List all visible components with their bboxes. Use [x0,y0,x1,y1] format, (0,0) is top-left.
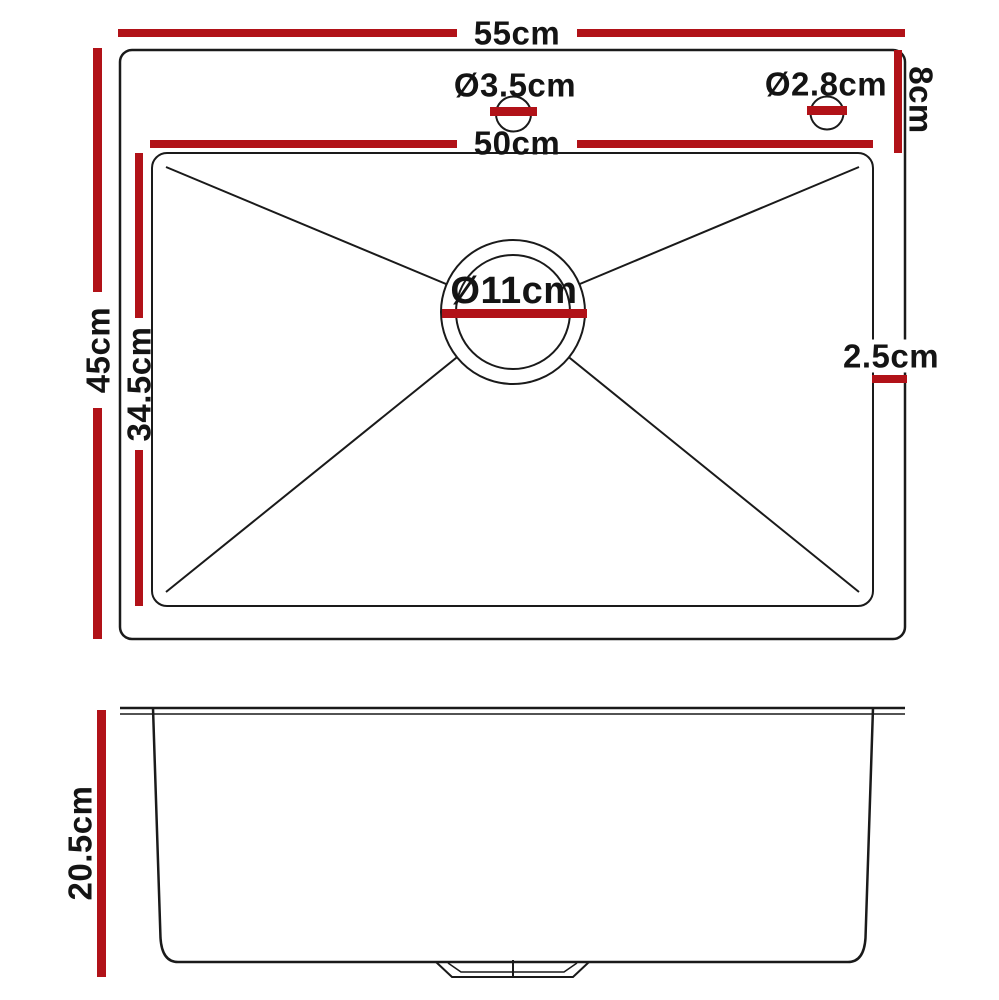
dim-band-faucet-hole [490,107,537,116]
side-view-bowl-profile [153,708,873,962]
label-hole-offset: 8cm [905,66,938,134]
label-accessory-hole-diameter: Ø2.8cm [765,68,887,101]
dim-line-2-5cm [872,375,907,383]
label-drain-diameter: Ø11cm [450,272,577,310]
label-edge-gap: 2.5cm [839,340,943,373]
dim-line-50cm-left [150,140,457,148]
label-bowl-depth: 34.5cm [123,327,156,442]
dim-line-8cm [894,50,902,153]
label-overall-depth: 45cm [82,307,115,393]
dim-line-55cm-left [118,29,457,37]
label-bowl-width: 50cm [474,127,560,160]
label-bowl-height: 20.5cm [64,786,97,901]
dim-line-34-5cm-top [135,153,143,318]
label-faucet-hole-diameter: Ø3.5cm [454,69,576,102]
dim-line-55cm-right [577,29,905,37]
sink-dimension-diagram: 55cm 50cm 45cm 34.5cm 8cm Ø3.5cm Ø2.8cm … [0,0,999,1000]
dim-line-34-5cm-bottom [135,450,143,606]
dim-line-45cm-bottom [93,408,102,639]
dim-band-accessory-hole [807,106,847,115]
label-overall-width: 55cm [474,17,560,50]
dim-line-50cm-right [577,140,873,148]
dim-line-45cm-top [93,48,102,292]
